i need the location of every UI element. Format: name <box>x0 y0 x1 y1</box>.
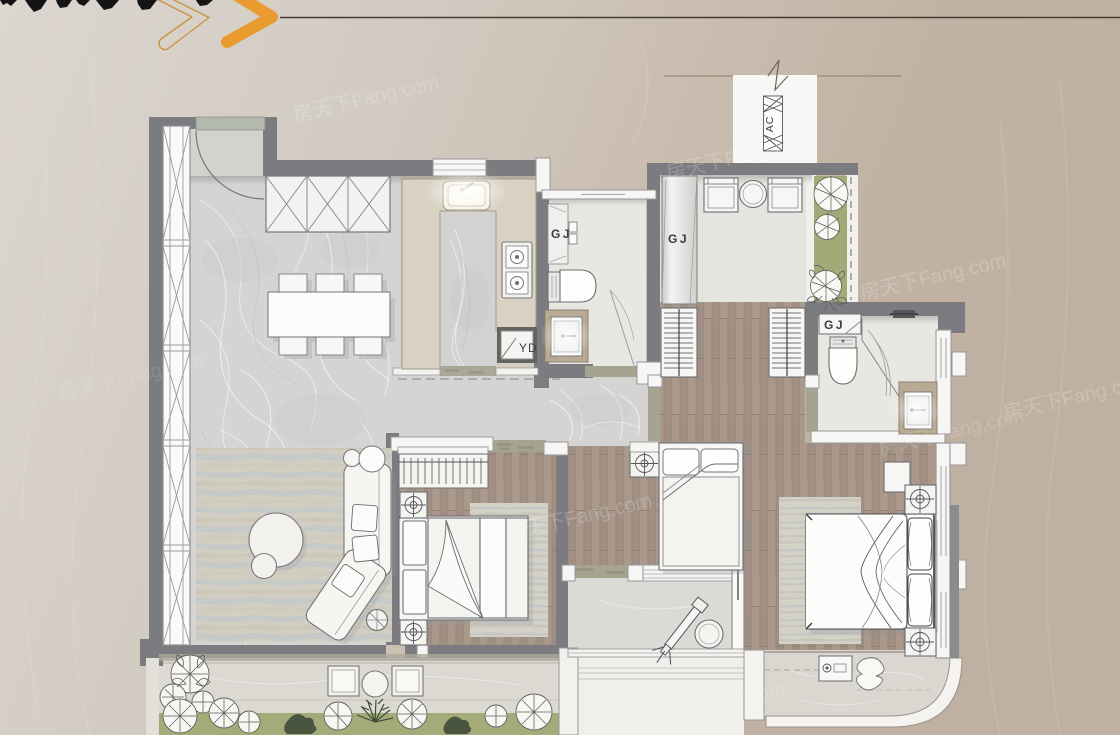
svg-text:GJ: GJ <box>824 318 845 332</box>
svg-text:GJ: GJ <box>551 227 572 241</box>
svg-text:AC: AC <box>764 116 776 133</box>
svg-text:YD: YD <box>519 341 538 355</box>
svg-text:GJ: GJ <box>668 232 689 246</box>
